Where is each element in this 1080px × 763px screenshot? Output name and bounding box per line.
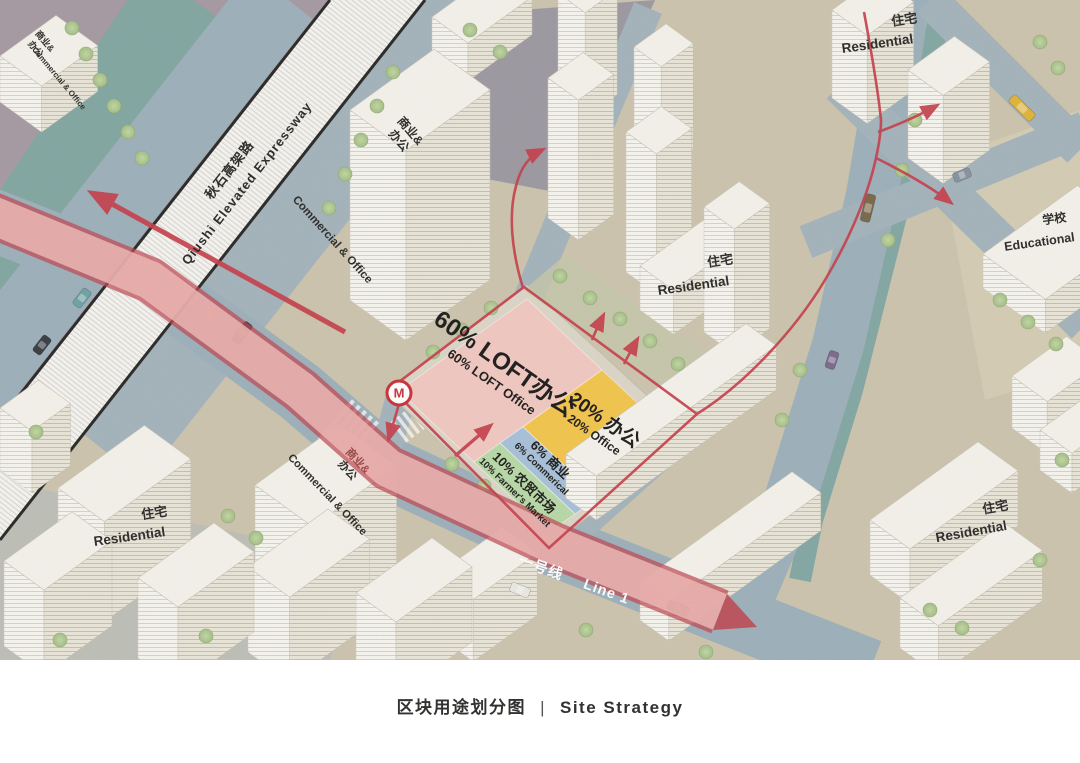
figure-caption: 区块用途划分图|Site Strategy — [0, 693, 1080, 718]
caption-en: Site Strategy — [560, 698, 683, 717]
site-strategy-figure: M 秋石高架路 Qiushi Elevated Expressway 60% L… — [0, 0, 1080, 763]
map-illustration: M 秋石高架路 Qiushi Elevated Expressway 60% L… — [0, 0, 1080, 660]
caption-divider: | — [540, 698, 546, 717]
paper-grain — [0, 0, 1080, 660]
caption-zh: 区块用途划分图 — [397, 698, 527, 717]
